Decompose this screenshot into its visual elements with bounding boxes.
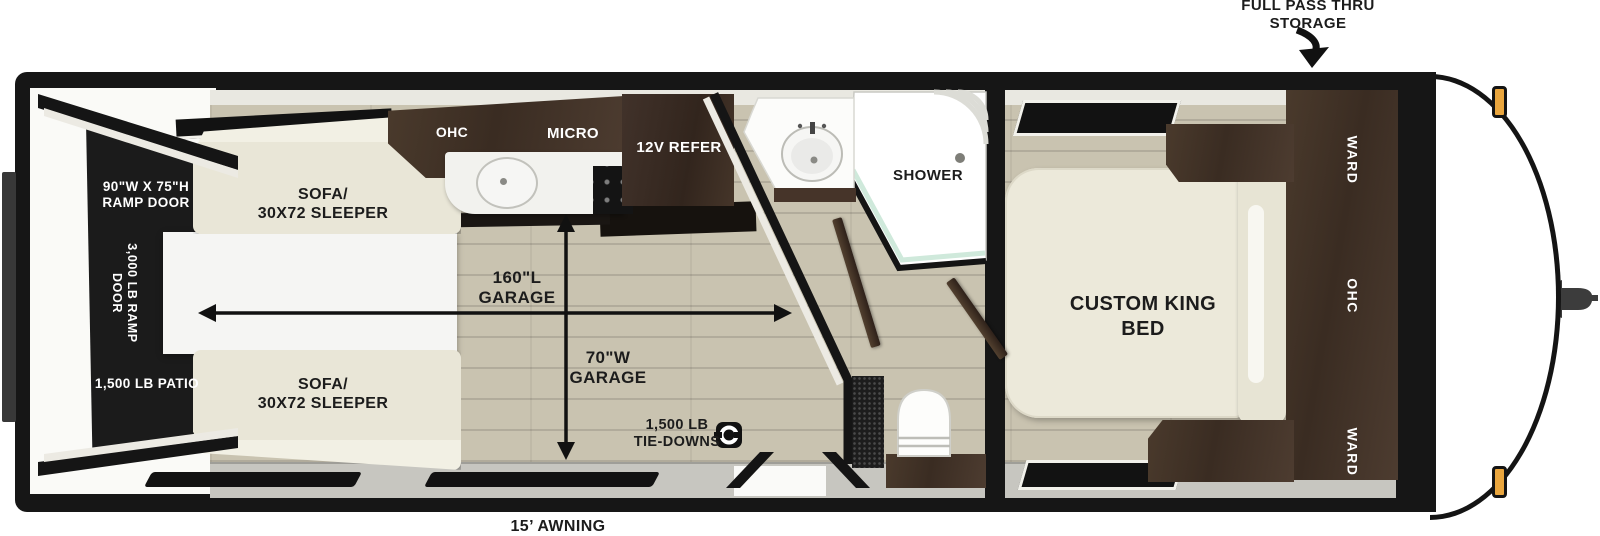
patio-label: 1,500 LB PATIO [95, 376, 199, 392]
shower-label: SHOWER [893, 167, 963, 185]
sofa-bottom-line1: SOFA/ [258, 376, 389, 395]
king-bed-line1: CUSTOM KING [1070, 292, 1216, 317]
bottom-window-left [144, 472, 362, 487]
awning-label: 15’ AWNING [511, 518, 606, 536]
sofa-top-label: SOFA/ 30X72 SLEEPER [258, 186, 389, 224]
toilet-cabinet [886, 454, 986, 488]
pass-thru-storage-label: FULL PASS THRU STORAGE [1241, 0, 1374, 32]
garage-length-line2: GARAGE [478, 288, 555, 308]
ramp-rating-label: 3,000 LB RAMP DOOR [109, 243, 139, 343]
tie-downs-line2: TIE-DOWNS [634, 434, 721, 451]
sofa-top-line2: 30X72 SLEEPER [258, 205, 389, 224]
garage-length-line1: 160"L [478, 268, 555, 288]
ramp-size-line2: RAMP DOOR [102, 195, 189, 211]
bed-pillow [1248, 205, 1264, 383]
bedroom-window-top [1013, 100, 1181, 136]
garage-width-line2: GARAGE [569, 368, 646, 388]
top-wall-lining [210, 90, 1398, 105]
ohc-label: OHC [436, 124, 468, 141]
front-cap [1430, 74, 1561, 520]
sofa-top-line1: SOFA/ [258, 186, 389, 205]
sofa-bottom-line2: 30X72 SLEEPER [258, 395, 389, 414]
pass-thru-line1: FULL PASS THRU [1241, 0, 1374, 15]
pass-thru-line2: STORAGE [1241, 15, 1374, 33]
ramp-door-size-label: 90"W X 75"H RAMP DOOR [102, 179, 189, 211]
marker-light-top [1492, 86, 1507, 118]
bottom-window-right [424, 472, 660, 487]
pass-thru-arrow-icon [1297, 30, 1329, 68]
garage-platform-table [163, 232, 457, 354]
garage-width-label: 70"W GARAGE [569, 348, 646, 388]
refer-label: 12V REFER [636, 139, 721, 157]
wardrobe-column [1286, 90, 1398, 480]
wardrobe-bottom-label: WARD [1344, 428, 1361, 477]
bedroom-ohc-label: OHC [1344, 278, 1361, 314]
king-bed-label: CUSTOM KING BED [1070, 292, 1216, 342]
utility-panel [852, 376, 884, 468]
front-wall [1396, 72, 1436, 512]
ramp-rating-line1: 3,000 LB RAMP [124, 243, 139, 343]
bedroom-dividing-wall [985, 72, 1005, 512]
sink-drain-icon [500, 178, 507, 185]
tie-downs-label: 1,500 LB TIE-DOWNS [634, 417, 721, 451]
entry-door-gap [734, 466, 826, 496]
marker-light-bottom [1492, 466, 1507, 498]
wardrobe-top-label: WARD [1344, 136, 1361, 185]
garage-length-label: 160"L GARAGE [478, 268, 555, 308]
wardrobe-arm-bottom [1148, 420, 1294, 482]
ramp-rating-line2: DOOR [109, 243, 124, 343]
rv-floorplan: FULL PASS THRU STORAGE 15’ AWNING 90"W X… [0, 0, 1600, 536]
micro-label: MICRO [547, 125, 599, 143]
king-bed-line2: BED [1070, 317, 1216, 342]
ramp-size-line1: 90"W X 75"H [102, 179, 189, 195]
wardrobe-arm-top [1166, 124, 1294, 182]
rear-bumper-icon [2, 172, 16, 422]
kitchen-sink-icon [476, 157, 538, 209]
sofa-bottom-label: SOFA/ 30X72 SLEEPER [258, 376, 389, 414]
garage-width-line1: 70"W [569, 348, 646, 368]
tie-downs-line1: 1,500 LB [634, 417, 721, 434]
